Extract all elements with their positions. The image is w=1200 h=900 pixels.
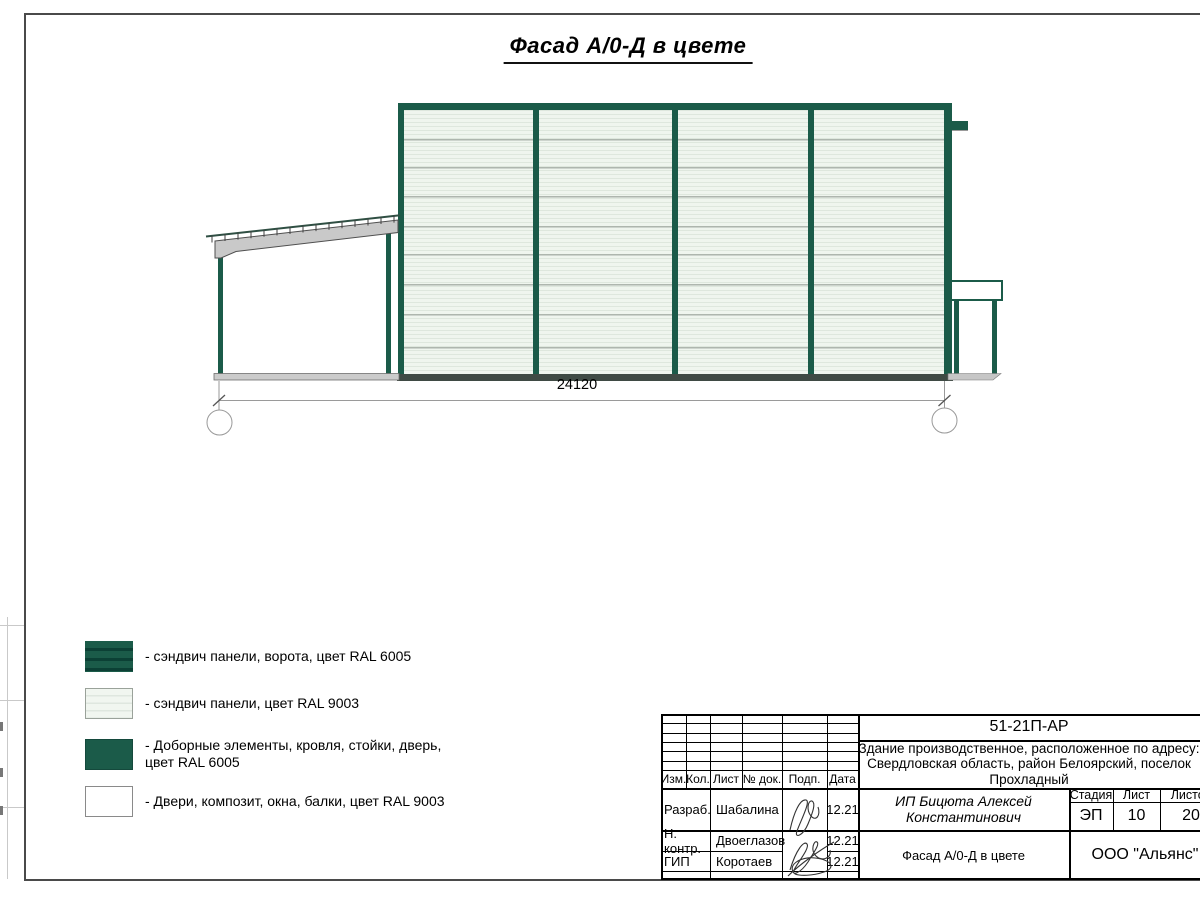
wall-corner-right [944, 110, 952, 374]
drawing-sheet: Фасад А/0-Д в цвете [0, 0, 1200, 900]
row-name: Двоеглазов [713, 830, 782, 851]
margin-line-1 [0, 625, 24, 626]
wall-mullion-2 [672, 110, 678, 374]
wall-corner-left [398, 110, 404, 374]
legend-label: - сэндвич панели, ворота, цвет RAL 6005 [145, 648, 411, 665]
building-wall-panels [398, 110, 952, 374]
col-header-doc: № док. [742, 770, 782, 788]
building-base [397, 374, 953, 381]
porch-canopy-beam [950, 280, 1003, 301]
stage-label: Стадия [1069, 788, 1113, 802]
roof-edge-bar [398, 103, 952, 110]
company-name: ООО "Альянс" [1069, 830, 1200, 880]
canopy-ground [214, 374, 399, 381]
sheet-number: 10 [1113, 802, 1160, 830]
canopy-rail [206, 215, 400, 236]
legend-item: - сэндвич панели, цвет RAL 9003 [85, 688, 359, 719]
sheet-label: Лист [1113, 788, 1160, 802]
doc-code: 51-21П-АР [858, 714, 1200, 740]
canopy-beam [215, 220, 398, 258]
title-block: Изм. Кол. Лист № док. Подп. Дата Разраб.… [661, 714, 1200, 880]
sheets-total: 20 [1160, 802, 1200, 830]
col-header-podp: Подп. [782, 770, 827, 788]
legend-label: - сэндвич панели, цвет RAL 9003 [145, 695, 359, 712]
canopy-rail-posts [212, 216, 394, 243]
project-description: Здание производственное, расположенное п… [858, 740, 1200, 788]
margin-text-fragment-2 [0, 768, 3, 777]
wall-mullion-3 [808, 110, 814, 374]
drawing-title: Фасад А/0-Д в цвете [858, 830, 1069, 880]
row-role: ГИП [661, 851, 710, 871]
row-date: 12.21 [827, 830, 858, 851]
margin-line-3 [0, 807, 24, 808]
legend-label: - Двери, композит, окна, балки, цвет RAL… [145, 793, 445, 810]
frame-top [24, 13, 1200, 15]
legend-swatch-trim-ral6005 [85, 739, 133, 770]
frame-left [24, 13, 26, 881]
legend-swatch-doors-ral9003 [85, 786, 133, 817]
dimension-label: 24120 [557, 377, 597, 393]
row-date: 12.21 [827, 851, 858, 871]
row-name: Шабалина [713, 788, 782, 830]
axis-bubble-right-label: Д [940, 414, 949, 429]
col-header-kol: Кол. [686, 770, 710, 788]
page-title: Фасад А/0-Д в цвете [504, 33, 753, 64]
col-header-izm: Изм. [661, 770, 686, 788]
col-header-data: Дата [827, 770, 858, 788]
legend-swatch-panel-ral9003 [85, 688, 133, 719]
gutter-outlet [952, 121, 968, 131]
row-role: Н. контр. [661, 830, 710, 851]
legend-swatch-gate-panel-ral6005 [85, 641, 133, 672]
row-name: Коротаев [713, 851, 782, 871]
margin-text-fragment-3 [0, 806, 3, 815]
row-date: 12.21 [827, 788, 858, 830]
legend-label: - Доборные элементы, кровля, стойки, две… [145, 737, 441, 771]
axis-bubble-left-label: А/0 [210, 416, 228, 430]
legend-item: - Доборные элементы, кровля, стойки, две… [85, 737, 441, 771]
porch-ground [948, 374, 1001, 381]
sheets-label: Листов [1160, 788, 1200, 802]
margin-line-2 [0, 700, 24, 701]
canopy-post-cap [382, 227, 394, 233]
wall-mullion-1 [533, 110, 539, 374]
porch-post-right [992, 301, 997, 374]
stage-value: ЭП [1069, 802, 1113, 830]
col-header-list: Лист [710, 770, 742, 788]
margin-line-vertical [7, 617, 8, 879]
porch-post-left [954, 301, 959, 374]
margin-text-fragment-1 [0, 722, 3, 731]
legend-item: - сэндвич панели, ворота, цвет RAL 6005 [85, 641, 411, 672]
canopy-post-right [386, 232, 391, 374]
legend-item: - Двери, композит, окна, балки, цвет RAL… [85, 786, 445, 817]
dimension-ticks [213, 395, 951, 406]
client-name: ИП Бицюта Алексей Константинович [858, 788, 1069, 830]
row-role: Разраб. [661, 788, 710, 830]
canopy-post-left [218, 250, 223, 374]
